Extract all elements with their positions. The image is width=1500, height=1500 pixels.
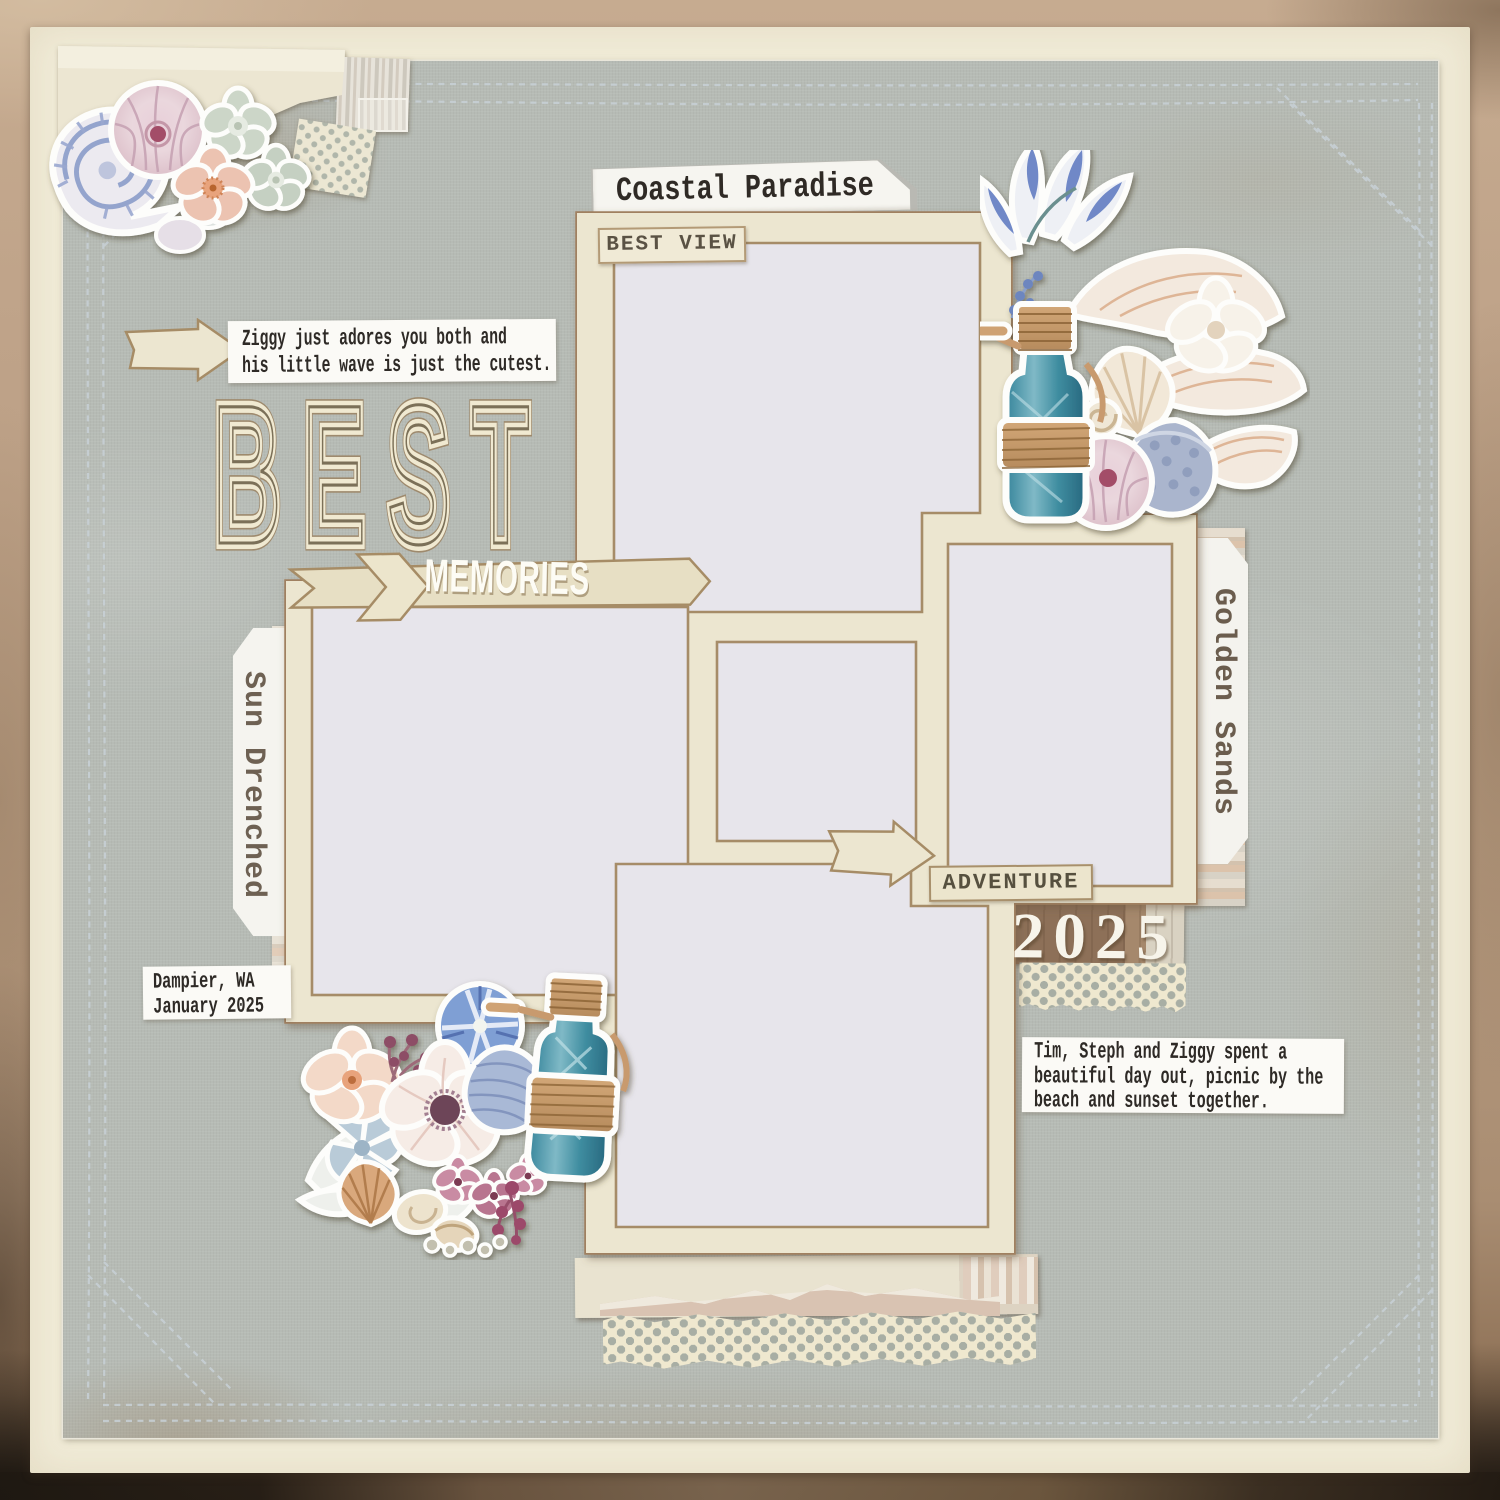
svg-text:BEST: BEST	[213, 380, 551, 570]
